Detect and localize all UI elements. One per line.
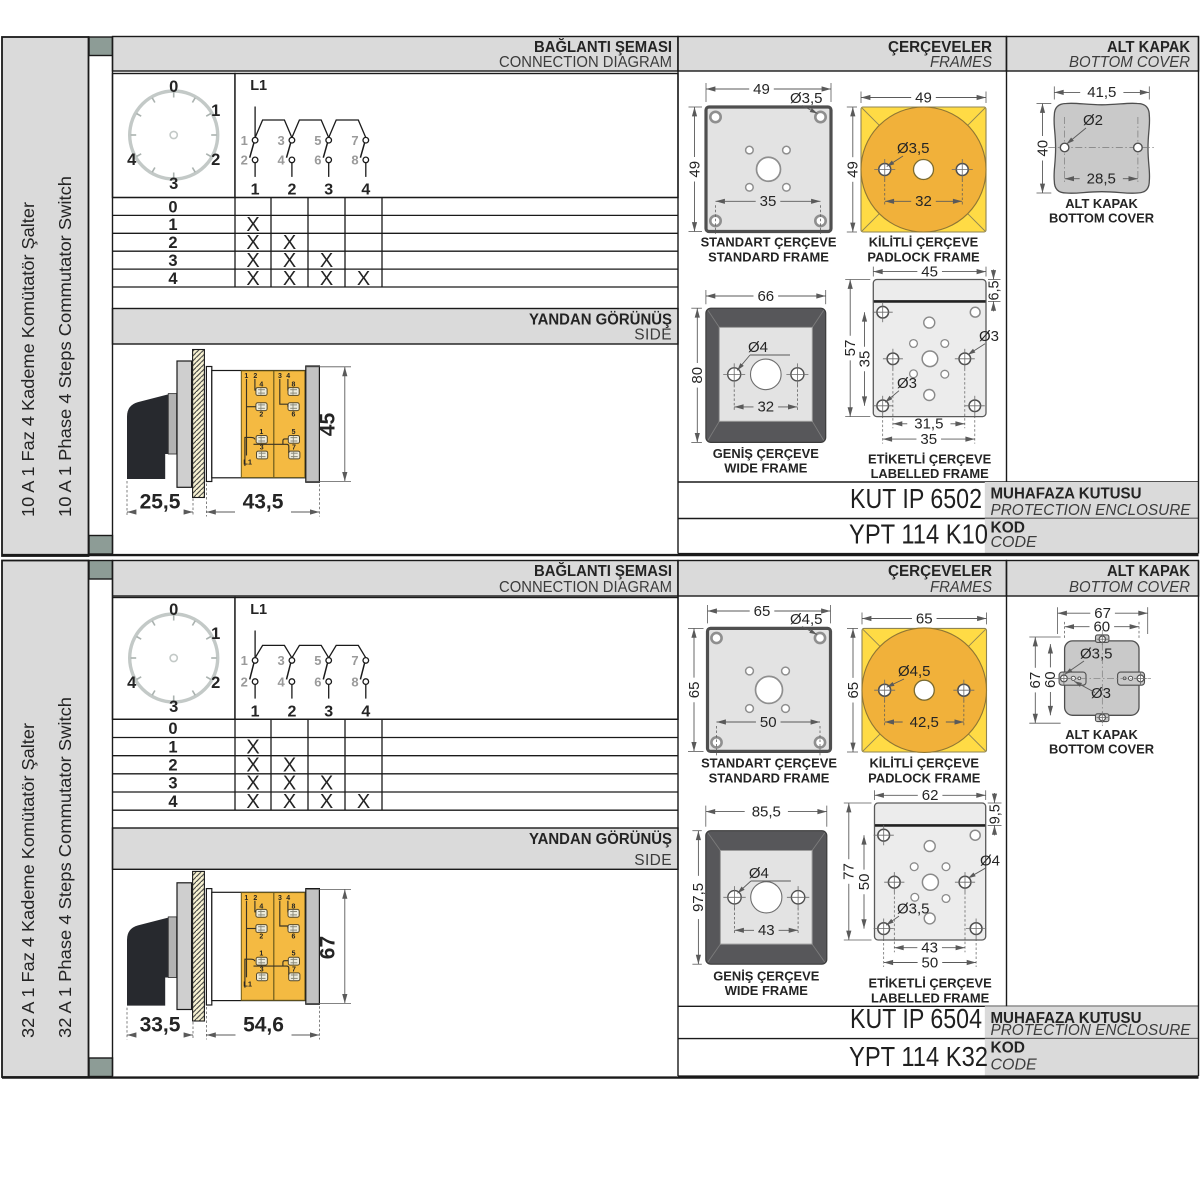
svg-text:28,5: 28,5 bbox=[1087, 171, 1116, 188]
svg-text:SIDE: SIDE bbox=[634, 852, 672, 869]
svg-text:4: 4 bbox=[168, 793, 178, 811]
svg-text:L1: L1 bbox=[243, 979, 252, 988]
svg-text:4: 4 bbox=[168, 270, 178, 288]
svg-text:3: 3 bbox=[168, 775, 177, 793]
svg-text:2: 2 bbox=[241, 674, 248, 689]
svg-text:0: 0 bbox=[168, 720, 177, 738]
svg-text:49: 49 bbox=[753, 81, 770, 98]
svg-text:5: 5 bbox=[314, 653, 321, 668]
svg-text:1: 1 bbox=[211, 625, 220, 643]
svg-text:3: 3 bbox=[169, 698, 178, 716]
svg-text:1: 1 bbox=[259, 951, 263, 958]
svg-text:1: 1 bbox=[241, 653, 248, 668]
svg-text:2: 2 bbox=[253, 895, 257, 902]
svg-text:97,5: 97,5 bbox=[690, 883, 707, 912]
svg-text:X: X bbox=[283, 791, 296, 813]
svg-text:67: 67 bbox=[316, 936, 339, 959]
svg-text:YPT 114 K32: YPT 114 K32 bbox=[849, 1041, 988, 1072]
svg-text:4: 4 bbox=[127, 674, 137, 692]
svg-text:54,6: 54,6 bbox=[243, 1014, 284, 1037]
svg-text:3: 3 bbox=[277, 653, 284, 668]
svg-text:GENİŞ ÇERÇEVE: GENİŞ ÇERÇEVE bbox=[713, 969, 819, 984]
svg-text:3: 3 bbox=[168, 252, 177, 270]
svg-text:4: 4 bbox=[286, 895, 290, 902]
svg-text:0: 0 bbox=[169, 601, 178, 619]
svg-text:Ø3: Ø3 bbox=[979, 328, 999, 345]
svg-text:KİLİTLİ ÇERÇEVE: KİLİTLİ ÇERÇEVE bbox=[869, 756, 979, 771]
svg-text:GENİŞ ÇERÇEVE: GENİŞ ÇERÇEVE bbox=[713, 446, 819, 461]
svg-text:49: 49 bbox=[686, 161, 703, 178]
svg-text:65: 65 bbox=[845, 682, 862, 699]
svg-text:43: 43 bbox=[758, 922, 775, 939]
svg-text:65: 65 bbox=[754, 603, 771, 620]
svg-text:32: 32 bbox=[915, 193, 932, 210]
svg-text:BAĞLANTI ŞEMASI: BAĞLANTI ŞEMASI bbox=[534, 562, 672, 580]
svg-text:2: 2 bbox=[253, 373, 257, 380]
svg-text:CONNECTION DIAGRAM: CONNECTION DIAGRAM bbox=[499, 579, 672, 596]
svg-text:42,5: 42,5 bbox=[910, 714, 939, 731]
svg-text:62: 62 bbox=[922, 787, 939, 804]
svg-text:Ø3: Ø3 bbox=[897, 375, 917, 392]
svg-text:YANDAN GÖRÜNÜŞ: YANDAN GÖRÜNÜŞ bbox=[529, 831, 672, 848]
svg-text:4: 4 bbox=[361, 704, 370, 721]
svg-text:X: X bbox=[320, 791, 333, 813]
svg-text:1: 1 bbox=[211, 102, 220, 120]
svg-text:2: 2 bbox=[168, 234, 177, 252]
svg-text:Ø3,5: Ø3,5 bbox=[1080, 645, 1113, 662]
svg-text:YPT 114 K10: YPT 114 K10 bbox=[849, 519, 988, 550]
svg-text:ETİKETLİ ÇERÇEVE: ETİKETLİ ÇERÇEVE bbox=[868, 452, 992, 467]
svg-text:45: 45 bbox=[921, 263, 938, 280]
svg-text:65: 65 bbox=[916, 610, 933, 627]
svg-text:3: 3 bbox=[169, 175, 178, 193]
svg-text:STANDART ÇERÇEVE: STANDART ÇERÇEVE bbox=[701, 756, 837, 771]
svg-text:2: 2 bbox=[211, 674, 220, 692]
svg-text:9,5: 9,5 bbox=[988, 804, 1004, 824]
svg-text:60: 60 bbox=[1042, 671, 1059, 688]
svg-text:ETİKETLİ ÇERÇEVE: ETİKETLİ ÇERÇEVE bbox=[868, 976, 992, 991]
svg-text:1: 1 bbox=[241, 133, 248, 148]
svg-text:1: 1 bbox=[251, 704, 260, 721]
svg-text:X: X bbox=[357, 268, 370, 290]
svg-text:60: 60 bbox=[1093, 619, 1110, 636]
svg-text:7: 7 bbox=[292, 445, 296, 452]
svg-text:3: 3 bbox=[260, 445, 264, 452]
svg-text:32 A 1 Phase 4 Steps Commutato: 32 A 1 Phase 4 Steps Commutator Switch bbox=[55, 697, 75, 1038]
svg-text:STANDARD FRAME: STANDARD FRAME bbox=[709, 771, 830, 786]
svg-text:32 A 1 Faz 4 Kademe Komütatör: 32 A 1 Faz 4 Kademe Komütatör Şalter bbox=[18, 723, 38, 1038]
svg-text:BOTTOM COVER: BOTTOM COVER bbox=[1069, 579, 1190, 596]
svg-text:ALT KAPAK: ALT KAPAK bbox=[1065, 727, 1138, 742]
svg-text:X: X bbox=[283, 268, 296, 290]
svg-text:4: 4 bbox=[127, 151, 137, 169]
svg-text:PADLOCK FRAME: PADLOCK FRAME bbox=[868, 771, 981, 786]
svg-text:WIDE FRAME: WIDE FRAME bbox=[725, 983, 808, 998]
svg-text:WIDE FRAME: WIDE FRAME bbox=[724, 461, 807, 476]
svg-text:50: 50 bbox=[922, 954, 939, 971]
svg-text:Ø4: Ø4 bbox=[980, 852, 1000, 869]
svg-text:40: 40 bbox=[1034, 140, 1051, 157]
svg-text:5: 5 bbox=[314, 133, 321, 148]
svg-text:1: 1 bbox=[259, 429, 263, 436]
svg-text:50: 50 bbox=[760, 714, 777, 731]
svg-text:X: X bbox=[357, 791, 370, 813]
svg-text:49: 49 bbox=[915, 89, 932, 106]
svg-text:L1: L1 bbox=[250, 602, 267, 618]
svg-text:X: X bbox=[246, 268, 259, 290]
svg-text:7: 7 bbox=[351, 133, 358, 148]
svg-text:Ø2: Ø2 bbox=[1083, 112, 1103, 129]
svg-text:Ø4,5: Ø4,5 bbox=[790, 611, 823, 628]
svg-text:35: 35 bbox=[760, 193, 777, 210]
svg-text:2: 2 bbox=[211, 151, 220, 169]
svg-text:35: 35 bbox=[856, 351, 873, 368]
svg-text:LABELLED FRAME: LABELLED FRAME bbox=[871, 466, 990, 481]
svg-text:10 A 1 Phase 4 Steps Commutato: 10 A 1 Phase 4 Steps Commutator Switch bbox=[55, 176, 75, 517]
svg-text:PADLOCK FRAME: PADLOCK FRAME bbox=[867, 250, 980, 265]
svg-text:L1: L1 bbox=[243, 458, 252, 467]
svg-text:80: 80 bbox=[689, 367, 706, 384]
svg-text:4: 4 bbox=[277, 674, 285, 689]
svg-text:6,5: 6,5 bbox=[987, 280, 1003, 300]
svg-text:BOTTOM COVER: BOTTOM COVER bbox=[1049, 741, 1155, 756]
svg-text:3: 3 bbox=[260, 966, 264, 973]
svg-text:Ø3,5: Ø3,5 bbox=[897, 901, 930, 918]
svg-text:CODE: CODE bbox=[991, 534, 1038, 551]
svg-text:KUT IP 6504: KUT IP 6504 bbox=[850, 1003, 982, 1034]
svg-text:8: 8 bbox=[351, 674, 358, 689]
svg-text:85,5: 85,5 bbox=[752, 803, 781, 820]
svg-text:FRAMES: FRAMES bbox=[930, 54, 992, 71]
svg-text:32: 32 bbox=[757, 399, 774, 416]
svg-text:Ø4,5: Ø4,5 bbox=[898, 663, 931, 680]
svg-text:8: 8 bbox=[291, 382, 295, 389]
svg-text:Ø4: Ø4 bbox=[748, 339, 768, 356]
svg-text:SIDE: SIDE bbox=[634, 327, 672, 344]
svg-text:Ø3,5: Ø3,5 bbox=[897, 140, 930, 157]
svg-text:2: 2 bbox=[259, 412, 263, 419]
svg-text:2: 2 bbox=[287, 704, 296, 721]
svg-text:2: 2 bbox=[287, 182, 296, 199]
svg-text:0: 0 bbox=[169, 78, 178, 96]
svg-text:45: 45 bbox=[316, 413, 339, 437]
svg-text:66: 66 bbox=[757, 288, 774, 305]
svg-text:STANDART ÇERÇEVE: STANDART ÇERÇEVE bbox=[701, 235, 837, 250]
svg-text:3: 3 bbox=[324, 704, 333, 721]
svg-text:3: 3 bbox=[278, 373, 282, 380]
svg-text:ALT KAPAK: ALT KAPAK bbox=[1107, 563, 1191, 580]
svg-text:FRAMES: FRAMES bbox=[930, 579, 992, 596]
svg-text:BOTTOM COVER: BOTTOM COVER bbox=[1049, 211, 1155, 226]
svg-text:3: 3 bbox=[278, 895, 282, 902]
svg-text:5: 5 bbox=[292, 429, 296, 436]
svg-text:ÇERÇEVELER: ÇERÇEVELER bbox=[888, 563, 992, 580]
svg-text:STANDARD FRAME: STANDARD FRAME bbox=[708, 250, 829, 265]
svg-text:Ø4: Ø4 bbox=[749, 865, 769, 882]
svg-text:35: 35 bbox=[920, 431, 937, 448]
svg-text:BOTTOM COVER: BOTTOM COVER bbox=[1069, 54, 1190, 71]
svg-text:3: 3 bbox=[324, 182, 333, 199]
svg-text:4: 4 bbox=[277, 153, 285, 168]
svg-text:1: 1 bbox=[168, 216, 177, 234]
svg-text:49: 49 bbox=[845, 161, 862, 178]
svg-text:ALT KAPAK: ALT KAPAK bbox=[1065, 196, 1138, 211]
svg-text:4: 4 bbox=[286, 373, 290, 380]
svg-text:X: X bbox=[246, 791, 259, 813]
svg-text:4: 4 bbox=[259, 382, 263, 389]
svg-text:CONNECTION DIAGRAM: CONNECTION DIAGRAM bbox=[499, 54, 672, 71]
svg-text:2: 2 bbox=[168, 757, 177, 775]
svg-text:6: 6 bbox=[314, 153, 321, 168]
svg-text:43,5: 43,5 bbox=[243, 491, 284, 514]
svg-text:L1: L1 bbox=[250, 78, 267, 94]
svg-text:8: 8 bbox=[351, 153, 358, 168]
svg-text:4: 4 bbox=[361, 182, 370, 199]
svg-text:2: 2 bbox=[259, 934, 263, 941]
svg-text:10 A 1 Faz 4 Kademe Komütatör: 10 A 1 Faz 4 Kademe Komütatör Şalter bbox=[18, 202, 38, 517]
svg-text:1: 1 bbox=[244, 373, 248, 380]
svg-text:2: 2 bbox=[241, 153, 248, 168]
svg-text:0: 0 bbox=[168, 198, 177, 216]
svg-text:KUT IP 6502: KUT IP 6502 bbox=[850, 483, 982, 514]
svg-text:X: X bbox=[320, 268, 333, 290]
svg-text:33,5: 33,5 bbox=[140, 1014, 181, 1037]
svg-text:1: 1 bbox=[244, 895, 248, 902]
svg-text:65: 65 bbox=[686, 682, 703, 699]
svg-text:1: 1 bbox=[168, 738, 177, 756]
svg-text:MUHAFAZA KUTUSU: MUHAFAZA KUTUSU bbox=[991, 486, 1142, 503]
svg-text:3: 3 bbox=[277, 133, 284, 148]
svg-text:1: 1 bbox=[251, 182, 260, 199]
svg-text:25,5: 25,5 bbox=[140, 491, 181, 514]
svg-text:41,5: 41,5 bbox=[1087, 84, 1116, 101]
svg-text:KOD: KOD bbox=[991, 1040, 1025, 1057]
svg-text:6: 6 bbox=[291, 412, 295, 419]
svg-text:5: 5 bbox=[292, 951, 296, 958]
svg-text:Ø3,5: Ø3,5 bbox=[790, 90, 823, 107]
svg-text:6: 6 bbox=[291, 934, 295, 941]
svg-text:KİLİTLİ ÇERÇEVE: KİLİTLİ ÇERÇEVE bbox=[869, 235, 979, 250]
svg-text:50: 50 bbox=[856, 874, 873, 891]
svg-text:6: 6 bbox=[314, 674, 321, 689]
svg-text:4: 4 bbox=[259, 903, 263, 910]
svg-text:CODE: CODE bbox=[991, 1057, 1038, 1074]
svg-text:8: 8 bbox=[291, 903, 295, 910]
svg-text:Ø3: Ø3 bbox=[1091, 685, 1111, 702]
svg-text:PROTECTION ENCLOSURE: PROTECTION ENCLOSURE bbox=[991, 1022, 1191, 1039]
svg-text:7: 7 bbox=[292, 966, 296, 973]
svg-text:7: 7 bbox=[351, 653, 358, 668]
svg-text:PROTECTION ENCLOSURE: PROTECTION ENCLOSURE bbox=[991, 502, 1191, 519]
